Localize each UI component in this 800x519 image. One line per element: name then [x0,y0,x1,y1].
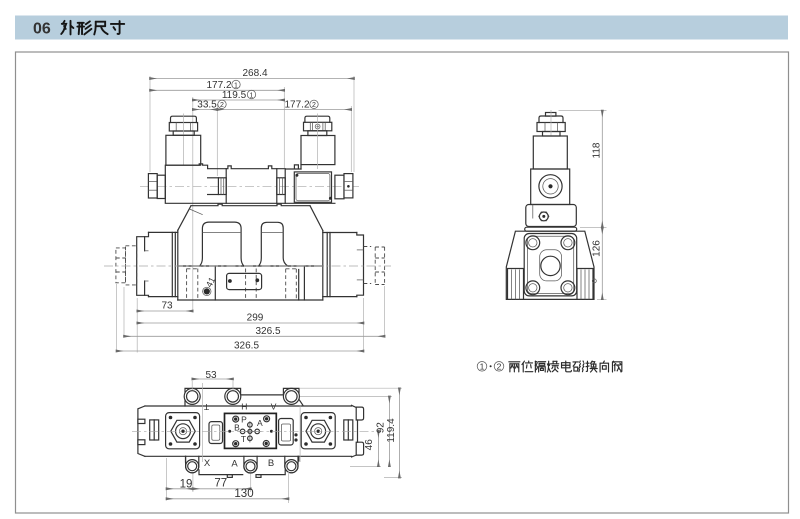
svg-text:2: 2 [220,102,224,109]
svg-text:19: 19 [180,478,193,490]
svg-text:T: T [241,434,246,444]
svg-text:119.5: 119.5 [222,90,247,101]
svg-text:2: 2 [497,361,502,371]
svg-text:1: 1 [480,361,485,371]
svg-text:A: A [270,402,276,412]
svg-text:A: A [231,459,238,470]
svg-text:130: 130 [234,488,253,500]
svg-text:126: 126 [592,240,603,257]
svg-text:73: 73 [161,301,173,312]
svg-text:T: T [204,402,209,412]
svg-text:A: A [257,418,263,428]
svg-text:53: 53 [205,370,217,381]
svg-text:77: 77 [214,478,227,490]
svg-text:P: P [241,415,247,425]
svg-text:2: 2 [312,102,316,109]
svg-text:06: 06 [33,21,51,38]
svg-text:326.5: 326.5 [255,326,280,337]
svg-text:299: 299 [247,313,264,324]
svg-text:33.5: 33.5 [197,100,217,111]
svg-text:119.4: 119.4 [386,418,397,443]
svg-text:92: 92 [376,422,387,434]
svg-text:46: 46 [364,439,375,451]
svg-text:H: H [241,402,247,412]
svg-text:1: 1 [250,92,254,99]
svg-text:118: 118 [592,142,603,158]
svg-text:326.5: 326.5 [234,341,259,352]
svg-text:B: B [268,458,274,469]
svg-text:177.2: 177.2 [284,100,309,111]
svg-text:268.4: 268.4 [242,68,267,79]
svg-text:X: X [204,458,211,469]
svg-text:1: 1 [234,82,238,89]
